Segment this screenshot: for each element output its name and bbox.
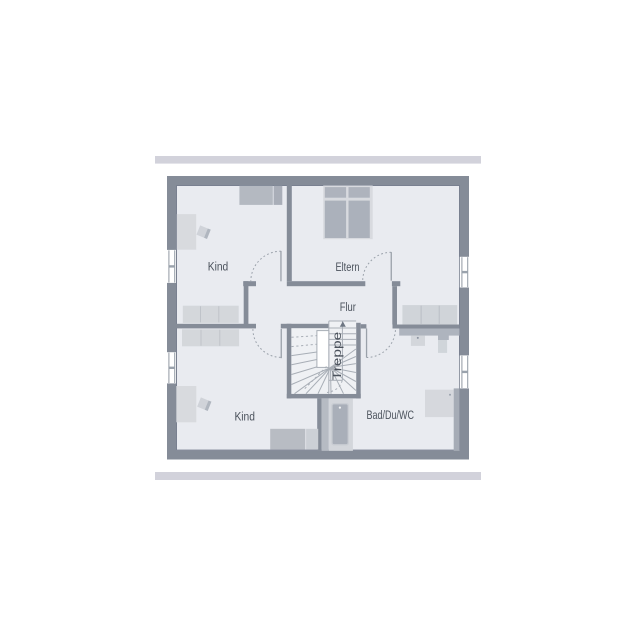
svg-text:Kind: Kind [234, 410, 255, 424]
svg-text:Eltern: Eltern [336, 260, 360, 274]
svg-text:Kind: Kind [208, 260, 229, 274]
svg-text:Bad/Du/WC: Bad/Du/WC [367, 408, 415, 422]
svg-text:Flur: Flur [340, 300, 356, 314]
svg-text:Treppe: Treppe [331, 332, 344, 381]
